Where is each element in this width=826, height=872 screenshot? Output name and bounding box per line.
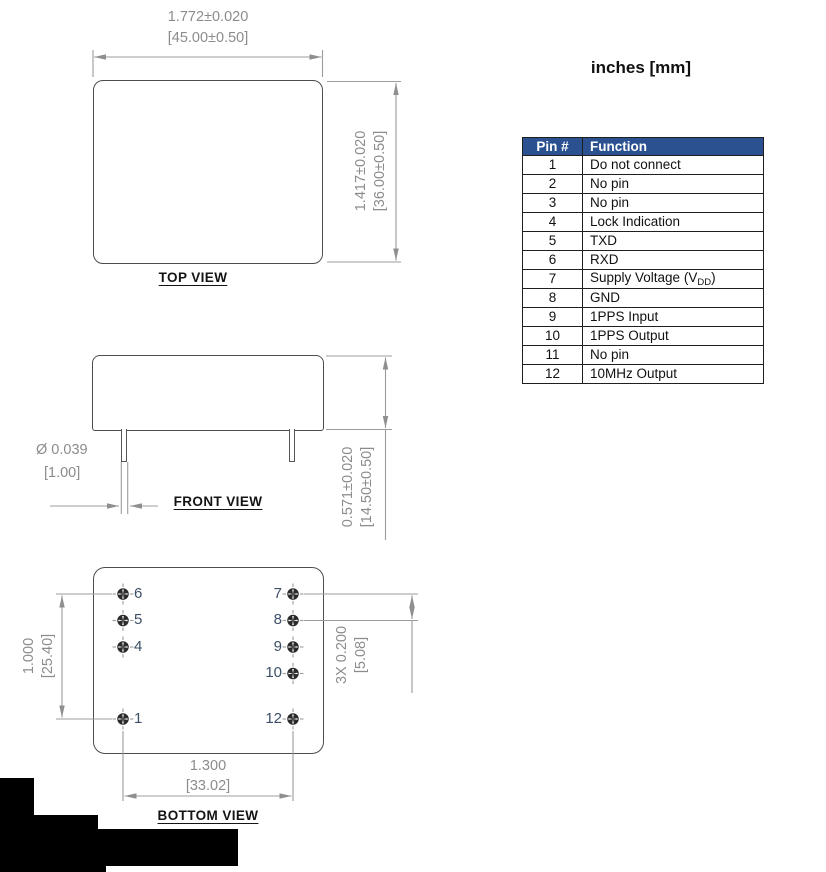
table-row: 12 10MHz Output	[523, 365, 764, 384]
bottom-vertical-pitch-dim: 1.000 [25.40]	[20, 596, 58, 716]
pin-cell: 3	[523, 194, 583, 213]
table-row: 7 Supply Voltage (VDD)	[523, 270, 764, 289]
bottom-span-dim-inches: 1.300	[148, 757, 268, 776]
function-text: Supply Voltage (V	[590, 270, 697, 285]
top-width-dim-inches: 1.772±0.020	[133, 8, 283, 27]
top-view-body-outline	[93, 80, 323, 264]
function-cell: No pin	[583, 175, 764, 194]
table-row: 5 TXD	[523, 232, 764, 251]
table-row: 6 RXD	[523, 251, 764, 270]
function-text-end: )	[711, 270, 716, 285]
bottom-pin-number-5: 5	[134, 610, 160, 630]
front-view-label: FRONT VIEW	[153, 494, 283, 509]
table-row: 10 1PPS Output	[523, 327, 764, 346]
bottom-pin-number-10: 10	[244, 663, 282, 683]
function-cell: Lock Indication	[583, 213, 764, 232]
table-row: 4 Lock Indication	[523, 213, 764, 232]
top-view-label: TOP VIEW	[128, 270, 258, 285]
redaction-block	[0, 863, 106, 872]
pin-cell: 11	[523, 346, 583, 365]
table-row: 2 No pin	[523, 175, 764, 194]
pin-diameter-dim-inches: Ø 0.039	[36, 441, 116, 460]
datasheet-mechanical-drawing-page: 1.772±0.020 [45.00±0.50] 1.417±0.020 [36…	[0, 0, 826, 872]
bottom-pin-number-4: 4	[134, 637, 160, 657]
pin-column-header: Pin #	[523, 138, 583, 156]
bottom-span-dim-mm: [33.02]	[148, 777, 268, 796]
top-height-dim: 1.417±0.020 [36.00±0.50]	[352, 111, 390, 231]
pin-cell: 9	[523, 308, 583, 327]
pin-cell: 8	[523, 289, 583, 308]
front-view-right-pin	[289, 429, 295, 462]
table-row: 11 No pin	[523, 346, 764, 365]
function-cell: 1PPS Input	[583, 308, 764, 327]
bottom-vertical-pitch-inches: 1.000	[20, 596, 39, 716]
table-row: 1 Do not connect	[523, 156, 764, 175]
function-cell: 1PPS Output	[583, 327, 764, 346]
bottom-view-label: BOTTOM VIEW	[140, 808, 276, 823]
front-height-dim: 0.571±0.020 [14.50±0.50]	[339, 427, 377, 547]
table-row: 3 No pin	[523, 194, 764, 213]
bottom-pin-number-6: 6	[134, 584, 160, 604]
table-header-row: Pin # Function	[523, 138, 764, 156]
function-cell: TXD	[583, 232, 764, 251]
bottom-row-pitch-inches: 3X 0.200	[333, 595, 352, 715]
pin-diameter-dim-mm: [1.00]	[44, 464, 104, 483]
units-note: inches [mm]	[556, 58, 726, 78]
bottom-row-pitch-dim: 3X 0.200 [5.08]	[333, 595, 371, 715]
front-height-dim-mm: [14.50±0.50]	[358, 427, 377, 547]
table-row: 9 1PPS Input	[523, 308, 764, 327]
top-height-dim-inches: 1.417±0.020	[352, 111, 371, 231]
pin-cell: 6	[523, 251, 583, 270]
function-cell: Do not connect	[583, 156, 764, 175]
bottom-pin-number-8: 8	[244, 610, 282, 630]
pin-cell: 7	[523, 270, 583, 289]
top-height-dim-mm: [36.00±0.50]	[371, 111, 390, 231]
function-cell: No pin	[583, 194, 764, 213]
function-column-header: Function	[583, 138, 764, 156]
bottom-pin-number-12: 12	[244, 709, 282, 729]
bottom-row-pitch-mm: [5.08]	[352, 595, 371, 715]
pin-cell: 2	[523, 175, 583, 194]
function-cell: 10MHz Output	[583, 365, 764, 384]
pin-cell: 12	[523, 365, 583, 384]
pin-cell: 5	[523, 232, 583, 251]
function-cell: No pin	[583, 346, 764, 365]
redaction-block	[0, 778, 34, 819]
front-view-body-outline	[92, 355, 324, 431]
redaction-block	[0, 829, 238, 866]
pin-function-table: Pin # Function 1 Do not connect 2 No pin…	[522, 137, 764, 384]
bottom-pin-number-9: 9	[244, 637, 282, 657]
pin-cell: 1	[523, 156, 583, 175]
pin-cell: 4	[523, 213, 583, 232]
bottom-pin-number-7: 7	[244, 584, 282, 604]
bottom-pin-number-1: 1	[134, 709, 160, 729]
table-row: 8 GND	[523, 289, 764, 308]
top-width-dim-mm: [45.00±0.50]	[133, 29, 283, 48]
pin-cell: 10	[523, 327, 583, 346]
function-subscript: DD	[697, 277, 711, 288]
front-view-left-pin	[121, 429, 127, 462]
function-cell: Supply Voltage (VDD)	[583, 270, 764, 289]
function-cell: GND	[583, 289, 764, 308]
front-height-dim-inches: 0.571±0.020	[339, 427, 358, 547]
function-cell: RXD	[583, 251, 764, 270]
bottom-vertical-pitch-mm: [25.40]	[39, 596, 58, 716]
bottom-view-body-outline	[93, 567, 324, 754]
